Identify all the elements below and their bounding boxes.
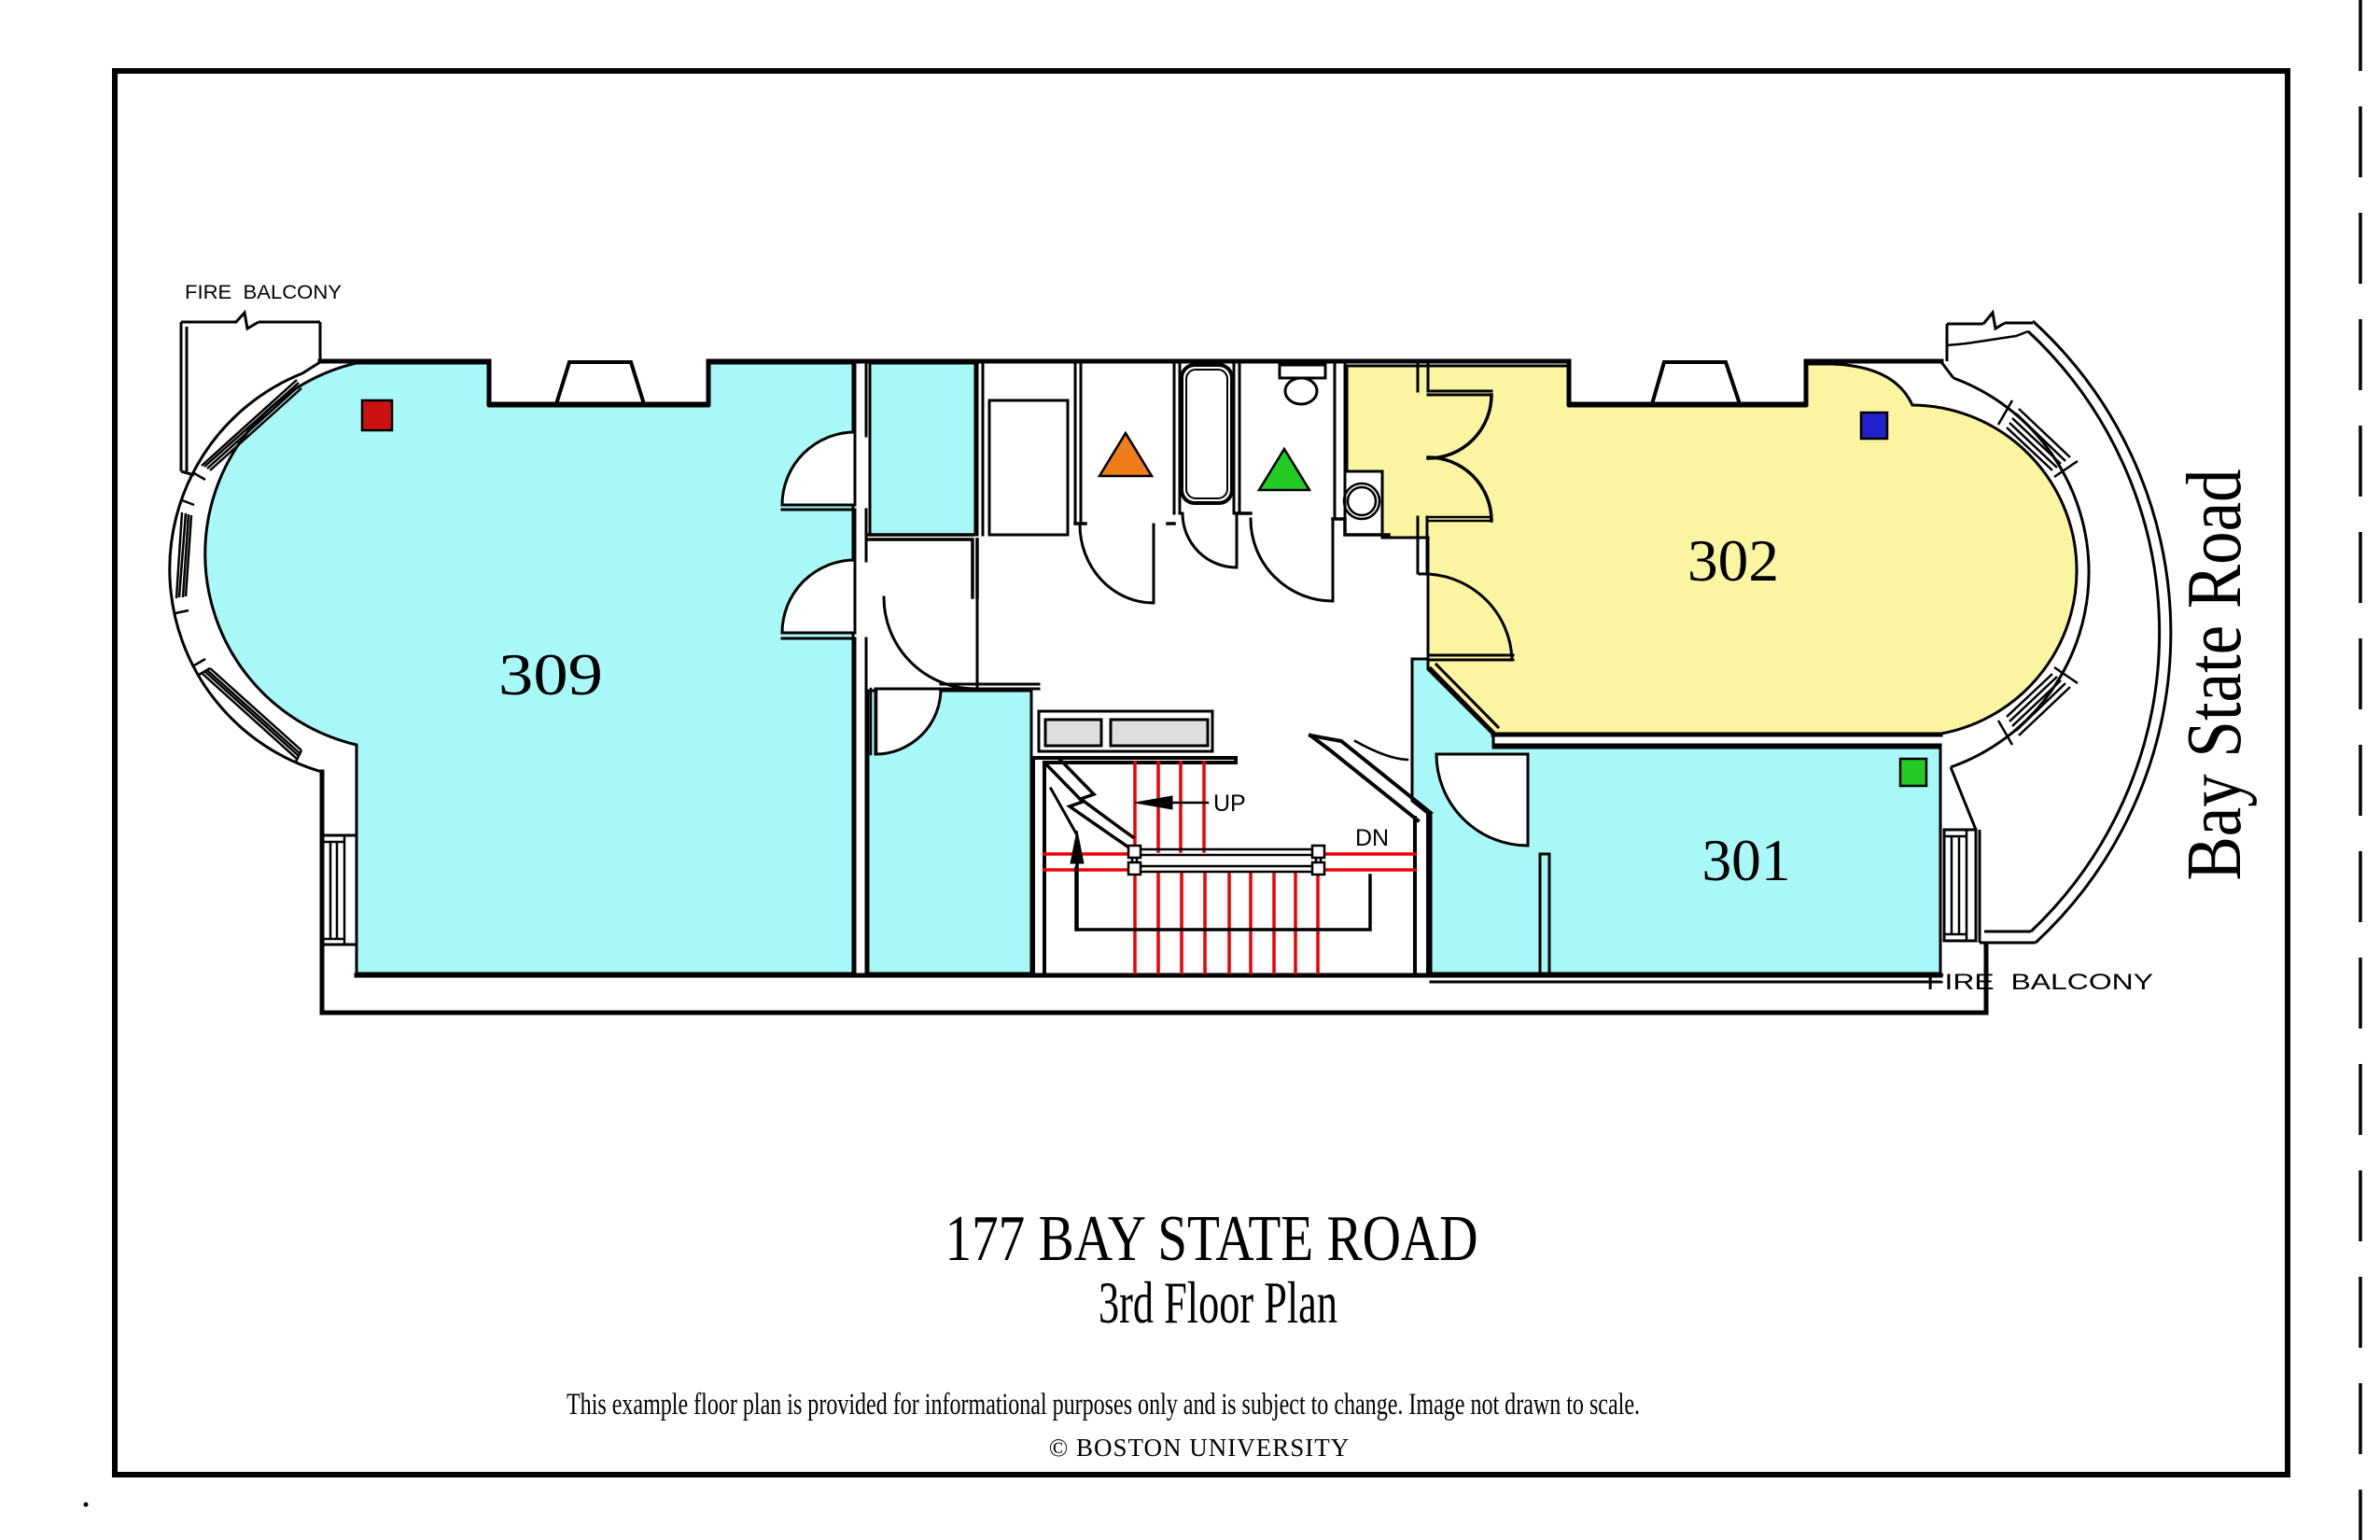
svg-text:Bay State Road: Bay State Road	[2171, 469, 2258, 881]
svg-text:© BOSTON UNIVERSITY: © BOSTON UNIVERSITY	[1049, 1434, 1351, 1462]
svg-text:This example floor plan is pro: This example floor plan is provided for …	[567, 1388, 1640, 1421]
svg-text:309: 309	[498, 641, 603, 707]
svg-text:UP: UP	[1213, 791, 1246, 817]
svg-text:177 BAY STATE ROAD: 177 BAY STATE ROAD	[945, 1203, 1478, 1275]
svg-text:301: 301	[1702, 827, 1791, 893]
svg-text:FIRE BALCONY: FIRE BALCONY	[185, 282, 342, 303]
svg-text:DN: DN	[1355, 825, 1389, 851]
svg-text:FIRE BALCONY: FIRE BALCONY	[1926, 970, 2153, 995]
svg-text:302: 302	[1687, 527, 1779, 594]
svg-text:3rd Floor Plan: 3rd Floor Plan	[1099, 1270, 1337, 1336]
